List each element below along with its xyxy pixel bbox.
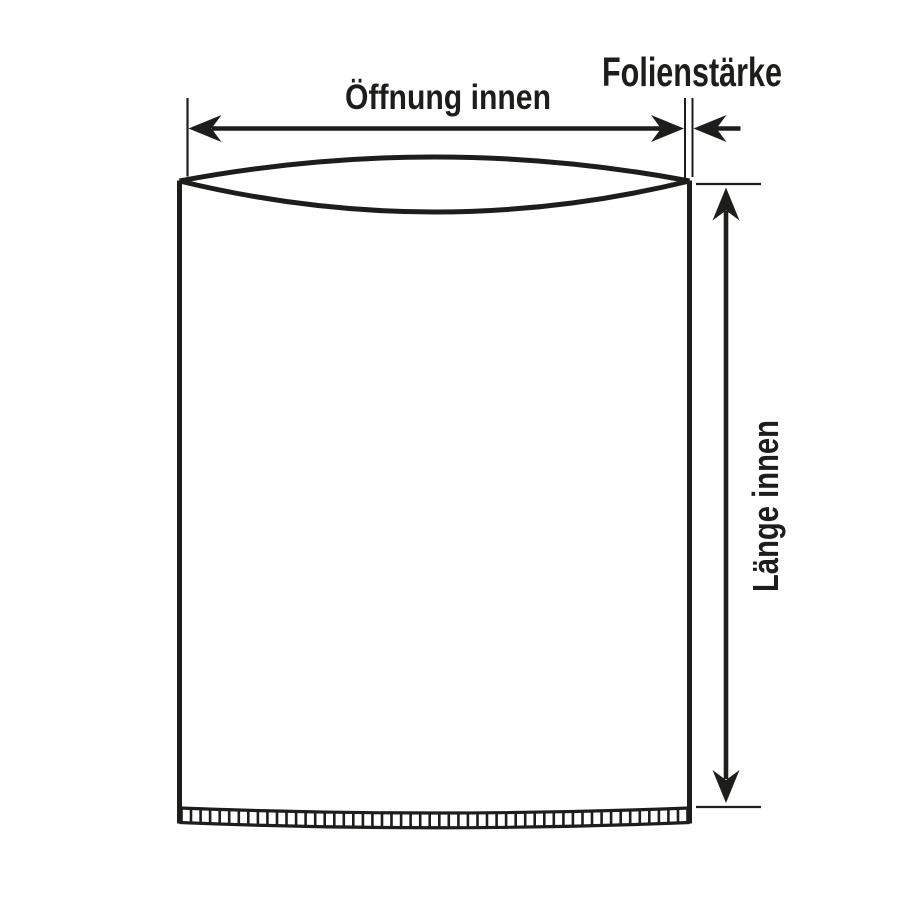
svg-text:Folienstärke: Folienstärke bbox=[602, 49, 782, 95]
svg-text:Länge innen: Länge innen bbox=[745, 420, 786, 592]
svg-text:Öffnung innen: Öffnung innen bbox=[345, 78, 551, 117]
